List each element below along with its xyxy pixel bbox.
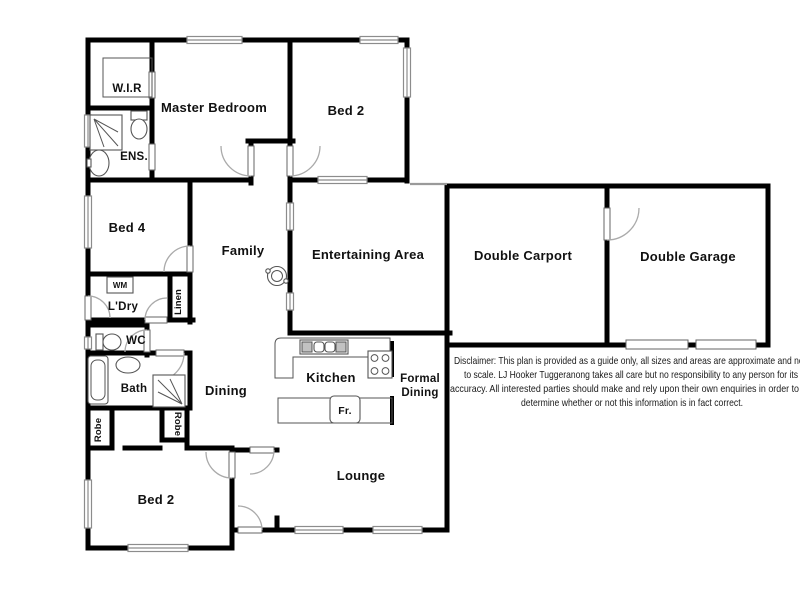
bath-basin-icon [116, 357, 140, 373]
garage-door-right [696, 340, 756, 349]
room-label-master-bedroom: Master Bedroom [161, 100, 267, 115]
garage-door-left [626, 340, 688, 349]
room-label-entertaining: Entertaining Area [312, 247, 425, 262]
room-label-ldry: L'Dry [108, 301, 139, 313]
room-label-dining: Dining [205, 383, 247, 398]
disclaimer-line-2: to scale. LJ Hooker Tuggeranong takes al… [464, 370, 798, 381]
floor-plan-page: W.I.R Master Bedroom Bed 2 ENS. Bed 4 Fa… [0, 0, 800, 600]
disclaimer-text: Disclaimer: This plan is provided as a g… [450, 356, 800, 409]
walls [88, 40, 768, 548]
room-label-ens: ENS. [120, 151, 148, 163]
room-label-bed2-top: Bed 2 [328, 103, 365, 118]
room-label-bed4: Bed 4 [109, 220, 146, 235]
room-label-formal-dining-2: Dining [401, 387, 438, 399]
room-label-robe-left: Robe [93, 418, 104, 442]
disclaimer-line-3: accuracy. All interested parties should … [450, 384, 799, 395]
room-label-carport: Double Carport [474, 248, 573, 263]
label-fridge: Fr. [338, 405, 352, 417]
floor-plan: W.I.R Master Bedroom Bed 2 ENS. Bed 4 Fa… [0, 0, 800, 600]
room-label-bed2-bottom: Bed 2 [138, 492, 175, 507]
stove-icon [368, 351, 392, 378]
room-label-linen: Linen [173, 289, 184, 315]
label-wm: WM [113, 281, 128, 290]
room-label-wir: W.I.R [112, 83, 142, 95]
room-label-robe-right: Robe [172, 412, 183, 436]
wc-toilet-icon [96, 334, 121, 350]
room-label-wc: WC [126, 335, 146, 347]
room-label-bath: Bath [121, 383, 148, 395]
room-label-formal-dining-1: Formal [400, 373, 440, 385]
disclaimer-line-1: Disclaimer: This plan is provided as a g… [454, 356, 800, 367]
room-label-garage: Double Garage [640, 249, 736, 264]
room-label-family: Family [222, 243, 265, 258]
ens-toilet-icon [131, 111, 147, 139]
disclaimer-line-4: determine whether or not this informatio… [521, 398, 743, 409]
ens-shower-icon [90, 115, 122, 150]
room-label-kitchen: Kitchen [306, 370, 355, 385]
room-label-lounge: Lounge [337, 468, 385, 483]
wood-heater-icon [266, 267, 288, 286]
kitchen-sink-icon [300, 340, 348, 354]
bathtub-icon [88, 356, 108, 404]
bath-shower-icon [153, 375, 185, 407]
